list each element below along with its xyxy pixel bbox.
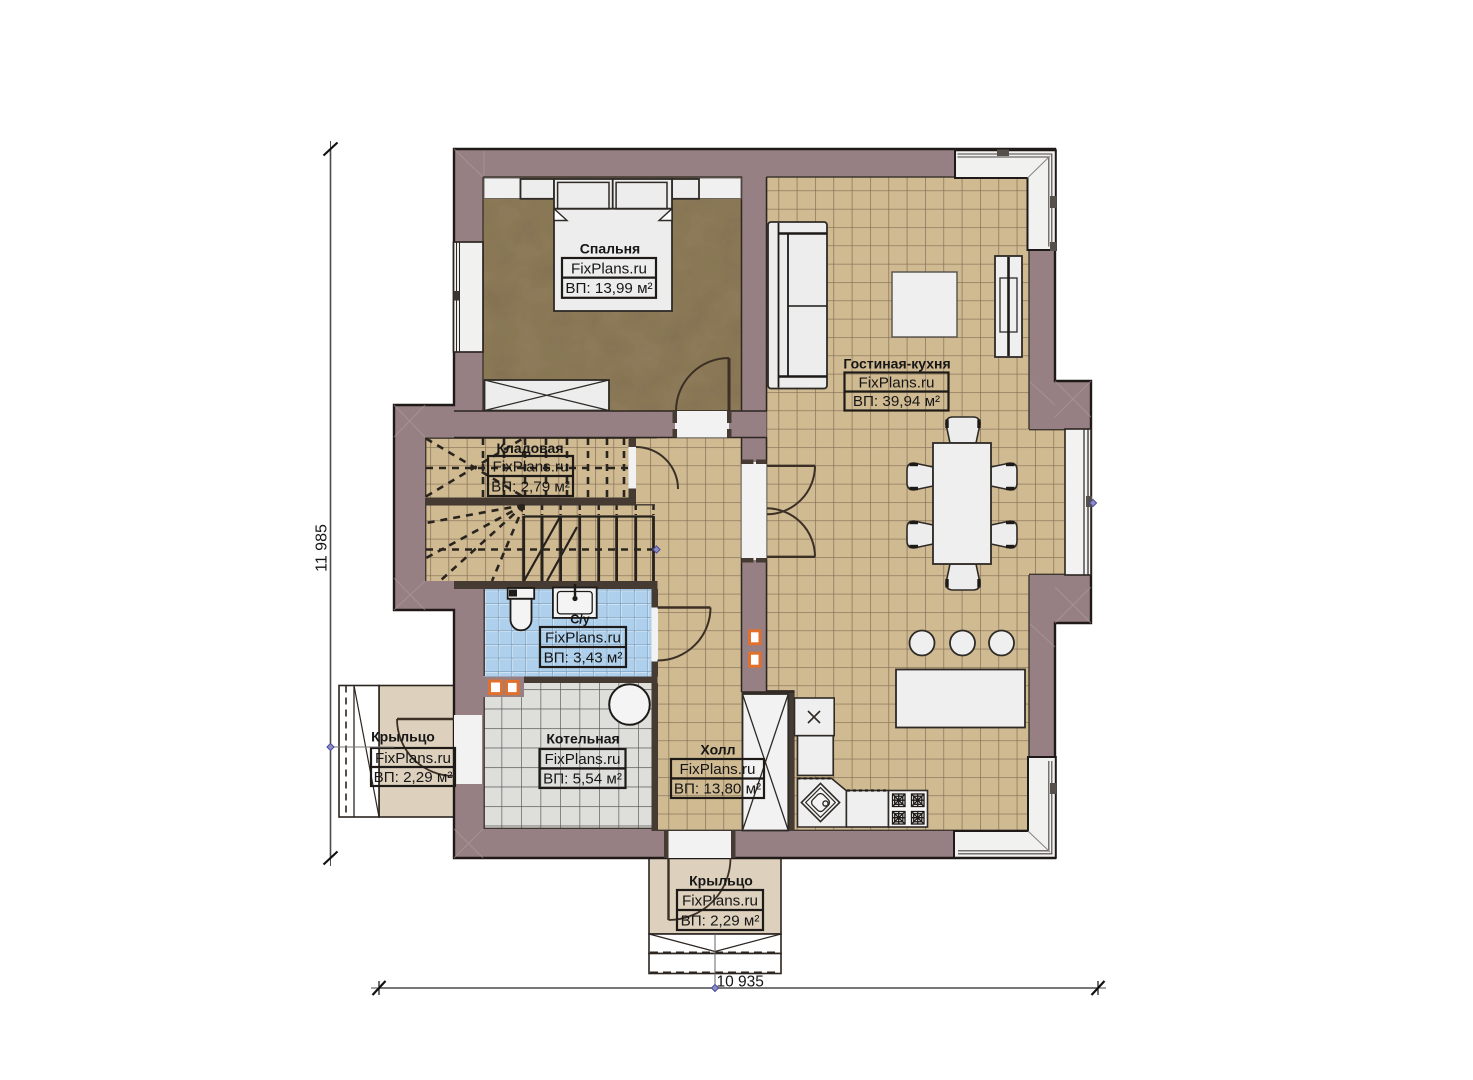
svg-text:10 935: 10 935 — [717, 974, 764, 991]
svg-text:Кладовая: Кладовая — [496, 440, 563, 456]
svg-text:FixPlans.ru: FixPlans.ru — [680, 761, 756, 778]
svg-text:ВП: 3,43 м²: ВП: 3,43 м² — [544, 649, 623, 666]
svg-text:11 985: 11 985 — [314, 524, 331, 572]
svg-text:ВП: 13,80 м²: ВП: 13,80 м² — [674, 781, 761, 798]
svg-text:Гостиная-кухня: Гостиная-кухня — [843, 356, 950, 372]
svg-text:ВП: 5,54 м²: ВП: 5,54 м² — [543, 771, 622, 788]
svg-text:ВП: 2,29 м²: ВП: 2,29 м² — [374, 769, 453, 786]
svg-text:FixPlans.ru: FixPlans.ru — [571, 260, 647, 277]
svg-text:ВП: 2,29 м²: ВП: 2,29 м² — [681, 912, 760, 929]
svg-text:ВП: 2,79 м²: ВП: 2,79 м² — [491, 478, 570, 495]
svg-text:ВП: 13,99 м²: ВП: 13,99 м² — [565, 280, 652, 297]
svg-text:ВП: 39,94 м²: ВП: 39,94 м² — [853, 393, 940, 410]
svg-text:FixPlans.ru: FixPlans.ru — [682, 893, 758, 910]
svg-text:Котельная: Котельная — [546, 731, 619, 747]
svg-text:С/у: С/у — [570, 613, 590, 627]
svg-text:FixPlans.ru: FixPlans.ru — [375, 750, 451, 767]
svg-text:Крыльцо: Крыльцо — [371, 729, 435, 745]
svg-text:FixPlans.ru: FixPlans.ru — [493, 459, 569, 476]
svg-text:Крыльцо: Крыльцо — [689, 873, 753, 889]
svg-text:FixPlans.ru: FixPlans.ru — [545, 630, 621, 647]
svg-text:FixPlans.ru: FixPlans.ru — [859, 375, 935, 392]
svg-text:Холл: Холл — [700, 742, 735, 758]
svg-text:Спальня: Спальня — [580, 241, 640, 257]
svg-text:FixPlans.ru: FixPlans.ru — [545, 751, 621, 768]
